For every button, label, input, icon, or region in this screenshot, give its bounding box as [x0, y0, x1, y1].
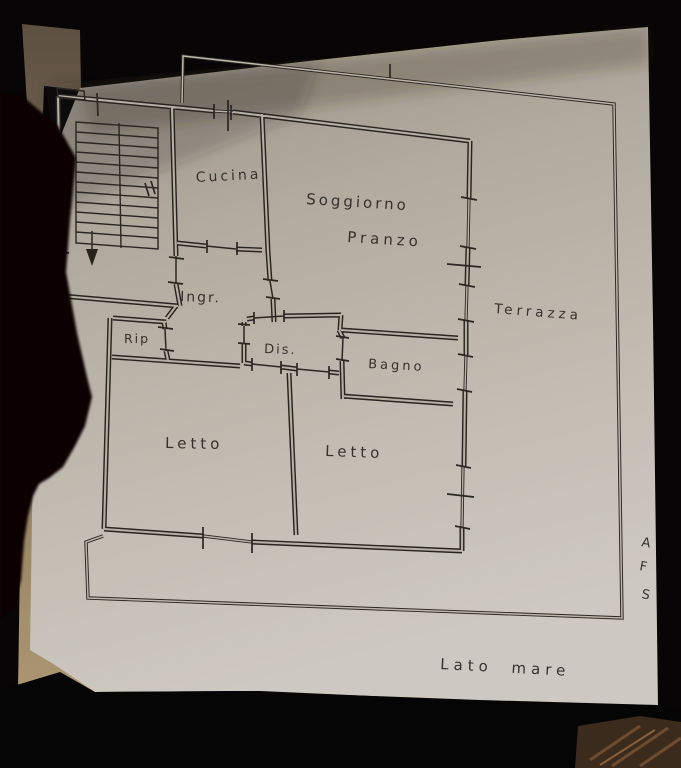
room-label-ingresso: Ingr. — [180, 289, 221, 306]
room-label-bagno: Bagno — [368, 357, 425, 375]
room-label-ripostiglio: Rip — [124, 331, 150, 346]
room-label-letto2: Letto — [325, 442, 384, 462]
room-label-disimpegno: Dis. — [264, 342, 297, 358]
room-label-letto1: Letto — [165, 434, 224, 453]
floorplan-photo: Cucina Soggiorno Pranzo Ingr. Rip Dis. B… — [0, 0, 681, 768]
